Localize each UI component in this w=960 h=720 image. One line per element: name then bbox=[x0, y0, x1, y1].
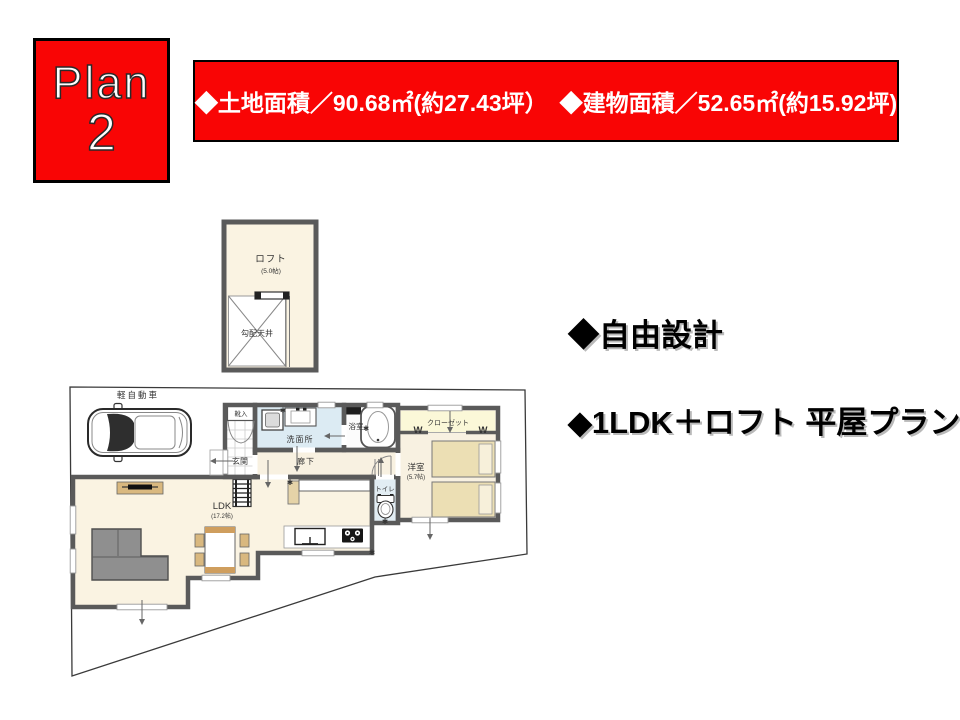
dining-chair bbox=[240, 553, 249, 566]
marker-star: ✱ bbox=[287, 478, 294, 487]
dining-chair bbox=[195, 553, 204, 566]
bedroom-label: 洋室 bbox=[407, 462, 425, 472]
shoe-cabinet-label: 靴入 bbox=[235, 409, 249, 418]
loft-ladder-end bbox=[283, 292, 289, 299]
hallway-label: 廊下 bbox=[297, 456, 315, 466]
sloped-ceiling-label: 勾配天井 bbox=[241, 328, 273, 338]
dining-table-edge bbox=[205, 527, 235, 533]
bathtub-drain bbox=[377, 439, 380, 442]
dining-table-edge bbox=[205, 567, 235, 573]
car-label: 軽自動車 bbox=[117, 390, 159, 400]
dining-chair bbox=[195, 534, 204, 547]
bedroom-size-label: (5.7帖) bbox=[407, 473, 425, 481]
window bbox=[495, 483, 501, 513]
washing-machine-lid bbox=[266, 413, 280, 427]
window bbox=[495, 441, 501, 473]
bath-counter bbox=[346, 407, 361, 415]
marker-star: ✱ bbox=[369, 548, 376, 557]
marker-star: ✱ bbox=[382, 517, 389, 526]
window bbox=[202, 575, 230, 581]
doorway-gap bbox=[293, 448, 315, 453]
window bbox=[302, 550, 334, 556]
ldk-size-label: (17.2帖) bbox=[211, 512, 233, 520]
window bbox=[367, 402, 383, 408]
kitchen-sink bbox=[295, 529, 325, 545]
washroom-label: 洗面所 bbox=[287, 434, 314, 444]
kitchen-stove bbox=[342, 529, 363, 543]
room-hallway-floor bbox=[255, 450, 398, 477]
toilet-label: トイレ bbox=[375, 486, 395, 493]
dining-table bbox=[205, 527, 235, 573]
window bbox=[318, 402, 335, 408]
doorway-gap bbox=[396, 453, 401, 476]
vanity-faucet bbox=[303, 408, 307, 411]
doorway-gap bbox=[342, 425, 347, 445]
tv bbox=[128, 485, 152, 490]
window bbox=[70, 549, 76, 573]
hanger-pipe-mark: W bbox=[479, 425, 488, 436]
hanger-pipe-mark: W bbox=[414, 425, 423, 436]
loft-stairs bbox=[233, 480, 251, 507]
car-windshield bbox=[107, 414, 134, 452]
floor-plan-canvas: ロフト (5.0帖) 勾配天井 軽自動車 bbox=[0, 0, 960, 720]
vanity-faucet bbox=[296, 408, 300, 411]
window bbox=[428, 405, 462, 411]
kitchen-island-counter bbox=[299, 480, 370, 491]
bed-pillow bbox=[479, 485, 492, 514]
dining-chair bbox=[240, 534, 249, 547]
bathroom-label: 浴室 bbox=[349, 421, 364, 431]
marker-star: ✱ bbox=[280, 406, 287, 415]
ldk-label: LDK bbox=[213, 501, 232, 512]
bed-pillow bbox=[479, 444, 492, 474]
doorway-gap bbox=[260, 475, 288, 480]
closet-label: クローゼット bbox=[427, 418, 469, 427]
window bbox=[70, 506, 76, 534]
porch-step bbox=[210, 450, 223, 475]
marker-star: ✱ bbox=[363, 424, 370, 433]
loft-plan: ロフト (5.0帖) 勾配天井 bbox=[224, 222, 316, 370]
loft-label: ロフト bbox=[255, 254, 287, 265]
entrance-label: 玄関 bbox=[232, 456, 248, 466]
doorway-gap bbox=[253, 455, 258, 474]
car-roof bbox=[135, 416, 175, 449]
loft-ladder-end bbox=[255, 292, 261, 299]
loft-size-label: (5.0帖) bbox=[261, 266, 281, 275]
